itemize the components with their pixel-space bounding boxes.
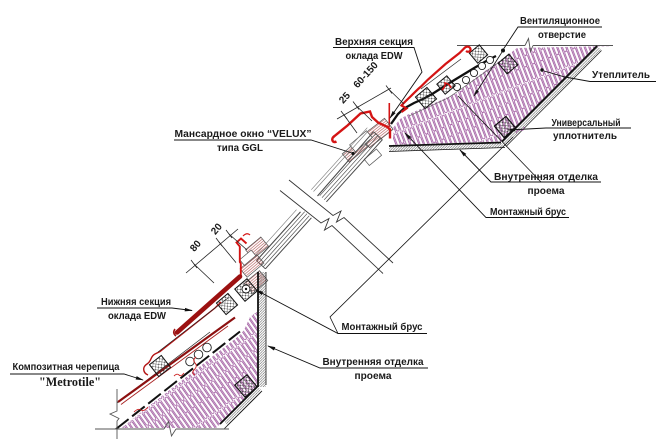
svg-text:проема: проема (355, 370, 392, 382)
svg-text:Вентиляционное: Вентиляционное (520, 15, 600, 27)
svg-text:"Metrotile": "Metrotile" (39, 374, 101, 389)
svg-text:оклада EDW: оклада EDW (108, 310, 166, 322)
svg-text:отверстие: отверстие (538, 29, 586, 41)
svg-text:Нижняя секция: Нижняя секция (101, 296, 171, 308)
svg-text:Универсальный: Универсальный (552, 117, 621, 129)
svg-text:Утеплитель: Утеплитель (592, 69, 651, 81)
svg-text:Внутренняя отделка: Внутренняя отделка (494, 171, 598, 183)
svg-text:типа GGL: типа GGL (217, 142, 264, 154)
svg-text:Верхняя секция: Верхняя секция (335, 36, 413, 48)
svg-text:проема: проема (528, 185, 565, 197)
svg-text:Мансардное окно “VELUX”: Мансардное окно “VELUX” (175, 128, 312, 140)
svg-text:Монтажный брус: Монтажный брус (342, 321, 423, 333)
svg-text:оклада EDW: оклада EDW (346, 50, 403, 62)
svg-text:Композитная черепица: Композитная черепица (13, 361, 120, 373)
svg-text:Внутренняя отделка: Внутренняя отделка (323, 356, 424, 368)
svg-text:уплотнитель: уплотнитель (553, 130, 618, 142)
svg-text:Монтажный брус: Монтажный брус (490, 206, 566, 218)
